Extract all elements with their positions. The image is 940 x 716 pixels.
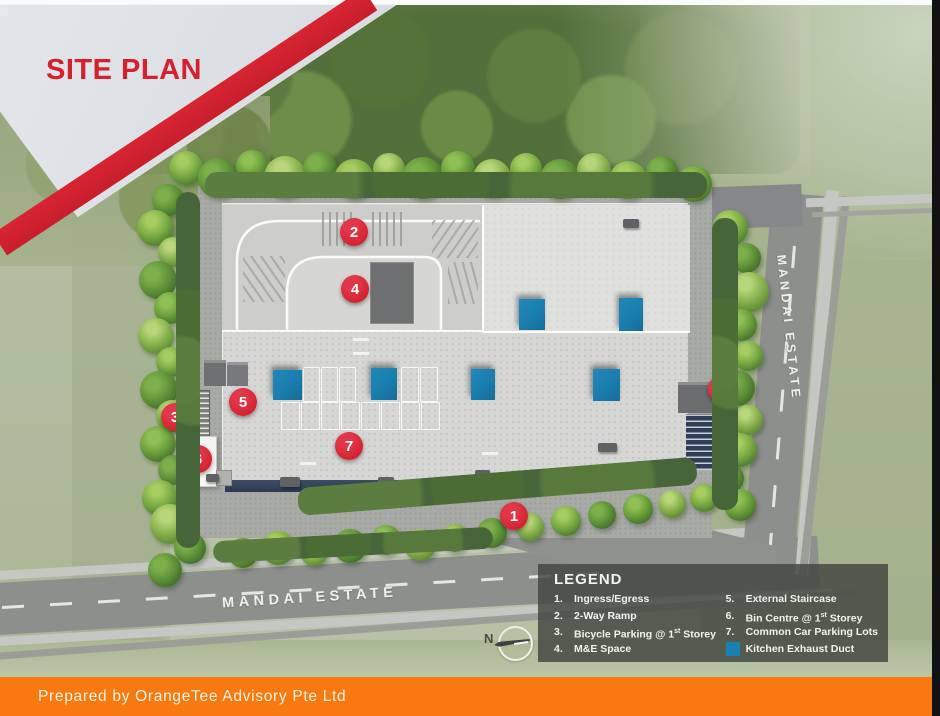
legend-item-number: 5.: [726, 592, 746, 607]
north-label: N: [484, 631, 493, 646]
legend-item-number: 7.: [726, 625, 746, 640]
legend-title: LEGEND: [554, 571, 878, 588]
legend-item-label: Bin Centre @ 1st Storey: [746, 609, 863, 626]
page-top-margin: [0, 0, 934, 5]
ramp-hatching: [372, 212, 406, 246]
external-staircase-right: [678, 382, 712, 413]
legend-columns: 1.Ingress/Egress2.2-Way Ramp3.Bicycle Pa…: [554, 592, 878, 658]
ramp-hatching: [322, 212, 356, 246]
legend-item-label: M&E Space: [574, 642, 631, 657]
roof-step: [216, 470, 232, 486]
footer-bar: Prepared by OrangeTee Advisory Pte Ltd: [0, 677, 940, 716]
legend-item: 5.External Staircase: [726, 592, 878, 609]
hedge-right: [712, 218, 738, 510]
legend-item-label: External Staircase: [746, 592, 837, 607]
lane-dash: [353, 338, 369, 341]
legend-item: 3.Bicycle Parking @ 1st Storey: [554, 625, 726, 642]
legend-item-number: 4.: [554, 642, 574, 657]
building-roof-upper: [482, 205, 690, 333]
me-space-structure: [370, 262, 414, 324]
legend-item-number: 3.: [554, 625, 574, 640]
footer-credit: Prepared by OrangeTee Advisory Pte Ltd: [38, 688, 346, 706]
ramp-hatching: [432, 220, 478, 258]
hedge-top: [205, 172, 707, 198]
hedge-left: [176, 192, 200, 548]
legend-item: 4.M&E Space: [554, 642, 726, 659]
ramp-hatching: [448, 262, 478, 304]
legend-item-label: 2-Way Ramp: [574, 609, 637, 624]
legend-item: 2.2-Way Ramp: [554, 609, 726, 626]
legend-column: 5.External Staircase6.Bin Centre @ 1st S…: [726, 592, 878, 658]
page-title: SITE PLAN: [46, 56, 202, 85]
legend-item-label: Bicycle Parking @ 1st Storey: [574, 625, 716, 642]
legend-item-number: 1.: [554, 592, 574, 607]
lane-dash: [353, 352, 369, 355]
legend-item: Kitchen Exhaust Duct: [726, 642, 878, 659]
lane-dash: [482, 452, 498, 455]
roof-structure: [227, 362, 248, 386]
legend-item-number: 6.: [726, 609, 746, 624]
lane-dash: [300, 462, 316, 465]
north-compass: N: [480, 620, 544, 664]
legend-item-label: Ingress/Egress: [574, 592, 649, 607]
legend-item-label: Common Car Parking Lots: [746, 625, 878, 640]
legend-panel: LEGEND 1.Ingress/Egress2.2-Way Ramp3.Bic…: [538, 564, 888, 662]
legend-item: 6.Bin Centre @ 1st Storey: [726, 609, 878, 626]
legend-item: 7.Common Car Parking Lots: [726, 625, 878, 642]
page-right-edge: [932, 0, 940, 716]
kitchen-exhaust-duct-swatch-icon: [726, 642, 740, 656]
site-plan-page: 24536751 MANDAI ESTATE MANDAI ESTATE N S…: [0, 0, 940, 716]
legend-item: 1.Ingress/Egress: [554, 592, 726, 609]
legend-column: 1.Ingress/Egress2.2-Way Ramp3.Bicycle Pa…: [554, 592, 726, 658]
legend-item-label: Kitchen Exhaust Duct: [746, 642, 855, 657]
ramp-hatching: [243, 256, 285, 302]
roof-structure: [204, 360, 226, 386]
legend-item-number: 2.: [554, 609, 574, 624]
